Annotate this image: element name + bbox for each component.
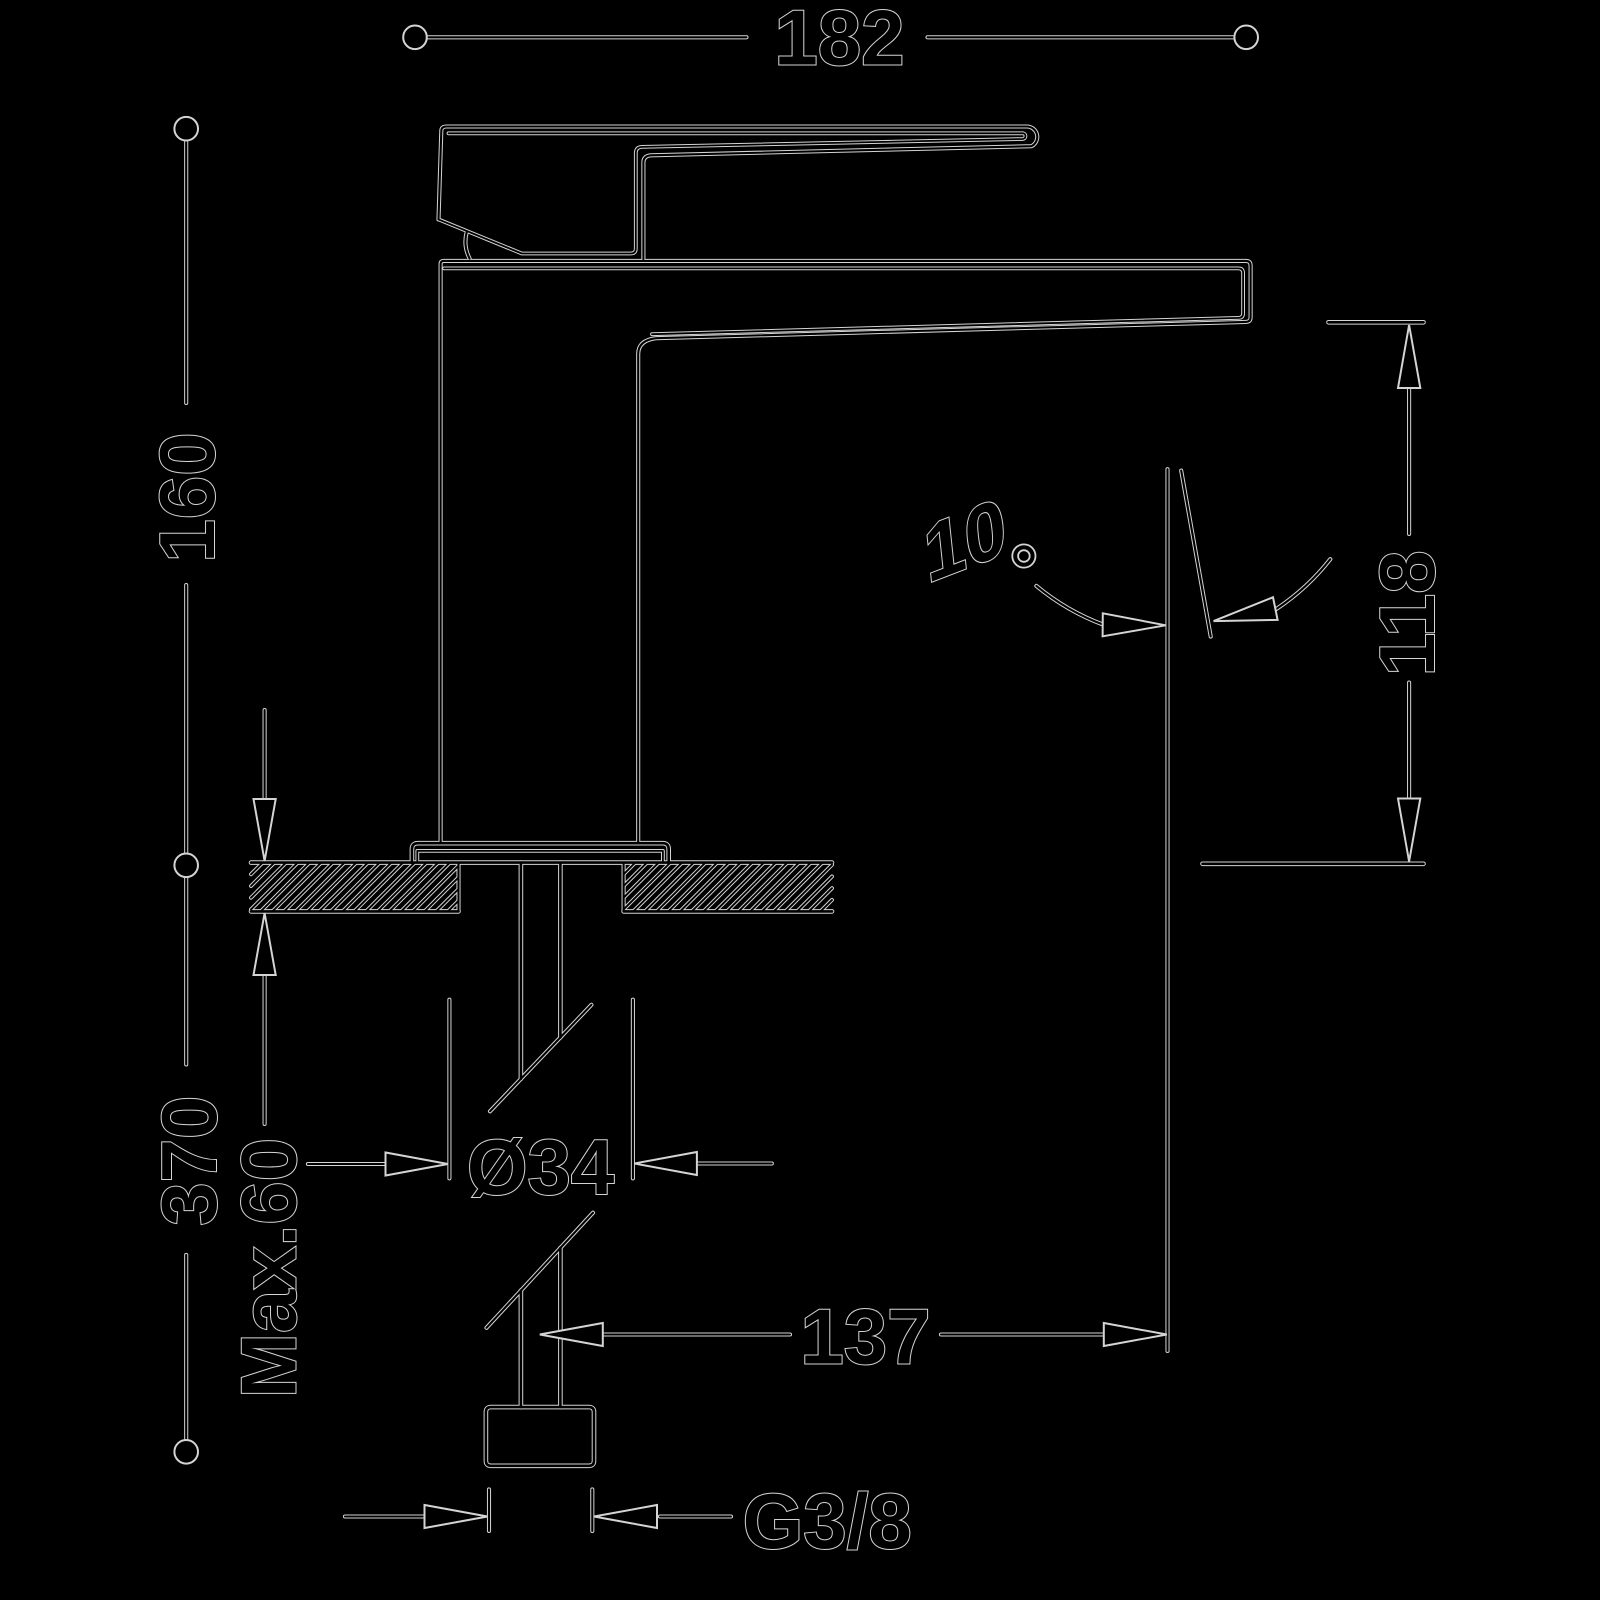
svg-text:370: 370 bbox=[145, 1096, 233, 1226]
svg-text:137: 137 bbox=[800, 1293, 930, 1381]
svg-text:Ø34: Ø34 bbox=[467, 1123, 614, 1211]
svg-text:160: 160 bbox=[143, 432, 231, 562]
svg-text:G3/8: G3/8 bbox=[743, 1477, 912, 1565]
svg-text:Max.60: Max.60 bbox=[224, 1138, 312, 1398]
svg-text:118: 118 bbox=[1363, 550, 1451, 676]
svg-text:182: 182 bbox=[774, 0, 904, 82]
